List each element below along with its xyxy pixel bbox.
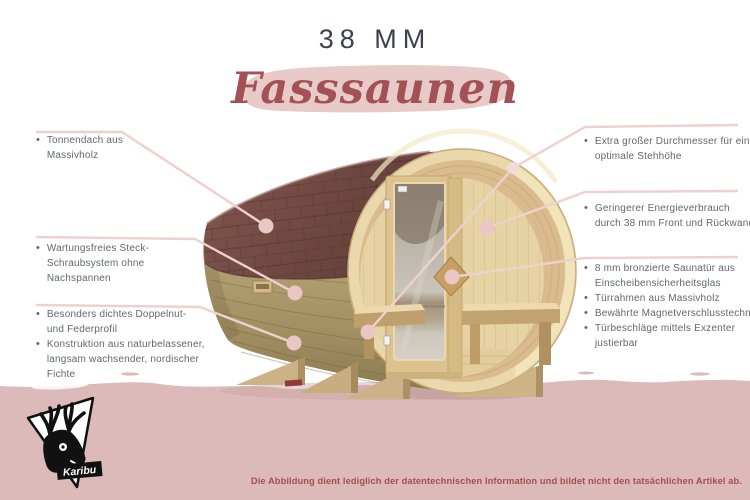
bullet-marker: • (584, 261, 588, 276)
bullet-marker: • (36, 133, 40, 148)
callout-item: • Bewährte Magnetverschlusstechnik (584, 306, 750, 321)
bullet-marker: • (584, 306, 588, 321)
callout-group-diameter: • Extra großer Durchmesser für eine opti… (584, 134, 750, 164)
headline-product: Fasssaunen (0, 64, 750, 114)
dot-wall-lower (287, 336, 302, 351)
door-hinge-bottom (384, 336, 390, 345)
bullet-marker: • (36, 241, 40, 256)
side-vent (253, 281, 272, 293)
callout-item: • Extra großer Durchmesser für eine opti… (584, 134, 750, 164)
bullet-marker: • (584, 321, 588, 336)
bullet-marker: • (584, 291, 588, 306)
disclaimer-text: Die Abbildung dient lediglich der datent… (251, 476, 742, 486)
dot-rim (507, 162, 519, 174)
infographic-page: Karibu 38 MM Fasssaunen • Tonnendach aus… (0, 0, 750, 500)
dot-interior (361, 325, 376, 340)
dot-roof (259, 219, 274, 234)
dot-front-wall (480, 221, 495, 236)
callout-item: • Wartungsfreies Steck- Schraubsystem oh… (36, 241, 149, 286)
door-hinge-top (384, 200, 390, 209)
dot-door-handle (445, 270, 460, 285)
headline-thickness: 38 MM (0, 24, 750, 55)
callout-item: • 8 mm bronzierte Saunatür aus Einscheib… (584, 261, 750, 291)
callout-item: • Tonnendach aus Massivholz (36, 133, 123, 163)
bullet-marker: • (36, 307, 40, 322)
bullet-marker: • (584, 201, 588, 216)
callout-item: • Türrahmen aus Massivholz (584, 291, 750, 306)
callout-item: • Konstruktion aus naturbelassener, lang… (36, 337, 205, 382)
callout-group-door: • 8 mm bronzierte Saunatür aus Einscheib… (584, 261, 750, 351)
bullet-marker: • (584, 134, 588, 149)
callout-item: • Besonders dichtes Doppelnut- und Feder… (36, 307, 205, 337)
callout-group-roof: • Tonnendach aus Massivholz (36, 133, 123, 163)
callout-group-energy: • Geringerer Energieverbrauch durch 38 m… (584, 201, 750, 231)
ground-object (285, 379, 302, 386)
callout-item: • Türbeschläge mittels Exzenter justierb… (584, 321, 750, 351)
callout-item: • Geringerer Energieverbrauch durch 38 m… (584, 201, 750, 231)
bullet-marker: • (36, 337, 40, 352)
callout-group-construction: • Besonders dichtes Doppelnut- und Feder… (36, 307, 205, 382)
dot-wall-upper (288, 286, 303, 301)
callout-group-steck-system: • Wartungsfreies Steck- Schraubsystem oh… (36, 241, 149, 286)
